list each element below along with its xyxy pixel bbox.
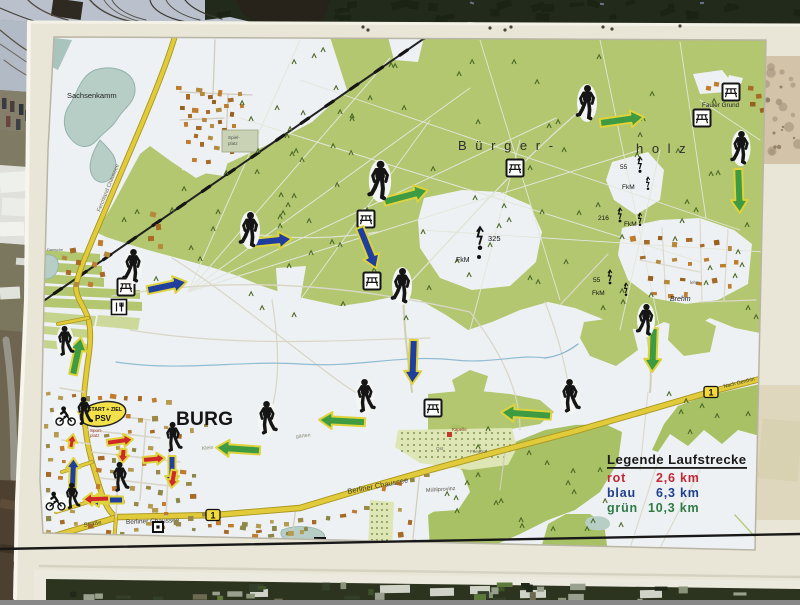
svg-text:Brehm: Brehm [670,296,691,303]
svg-text:1: 1 [210,511,215,521]
svg-text:grün: grün [607,501,638,515]
svg-text:platz: platz [90,433,100,438]
svg-text:Kapelle: Kapelle [452,427,467,432]
svg-text:blau: blau [607,486,636,500]
svg-text:rot: rot [607,471,626,485]
svg-text:FkM: FkM [622,184,635,191]
svg-text:2,6 km: 2,6 km [656,471,700,485]
svg-text:Fauler Grund: Fauler Grund [702,102,740,109]
svg-text:Sachsenkamm: Sachsenkamm [67,91,117,100]
svg-text:FkM: FkM [592,290,605,297]
svg-text:Friedhof: Friedhof [470,449,488,454]
svg-text:B ü r g e r -: B ü r g e r - [458,138,556,153]
svg-text:10,3 km: 10,3 km [648,501,699,515]
svg-text:lehm: lehm [690,280,700,285]
svg-text:BURG: BURG [176,409,233,430]
svg-text:Spiel-: Spiel- [228,135,240,140]
svg-text:Ost: Ost [436,446,444,451]
svg-text:PSV: PSV [95,414,112,423]
svg-text:Klein: Klein [202,445,214,452]
svg-text:1: 1 [708,388,713,398]
svg-text:h o l z: h o l z [636,141,688,156]
svg-text:325: 325 [488,234,501,243]
svg-text:Damsche: Damsche [47,248,63,252]
svg-text:FkM: FkM [456,257,470,264]
svg-text:55: 55 [593,277,601,284]
svg-text:START + ZIEL: START + ZIEL [88,407,123,413]
svg-text:FkM: FkM [624,221,637,228]
svg-text:216: 216 [598,215,609,222]
svg-text:55: 55 [620,164,628,171]
svg-text:6,3 km: 6,3 km [656,486,700,500]
svg-text:platz: platz [228,141,238,146]
svg-text:Legende Laufstrecke: Legende Laufstrecke [607,452,747,467]
